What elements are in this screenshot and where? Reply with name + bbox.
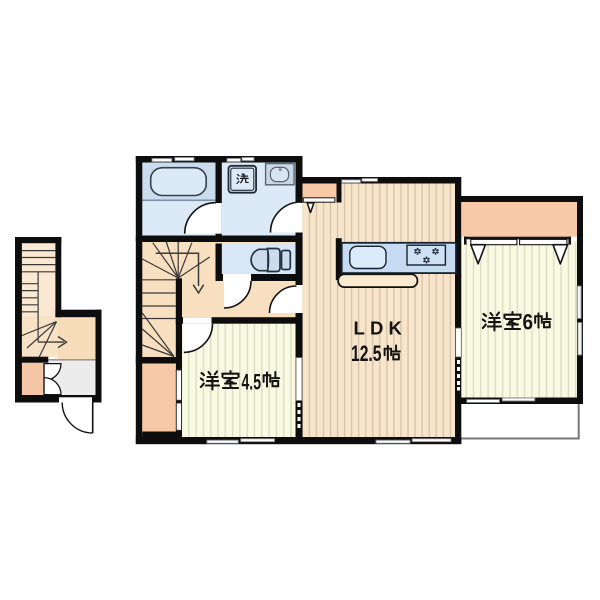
svg-text:6: 6 [523, 310, 534, 335]
svg-text:4.5: 4.5 [242, 370, 262, 395]
svg-text:LDK: LDK [354, 318, 408, 339]
svg-text:12.5: 12.5 [351, 341, 382, 366]
